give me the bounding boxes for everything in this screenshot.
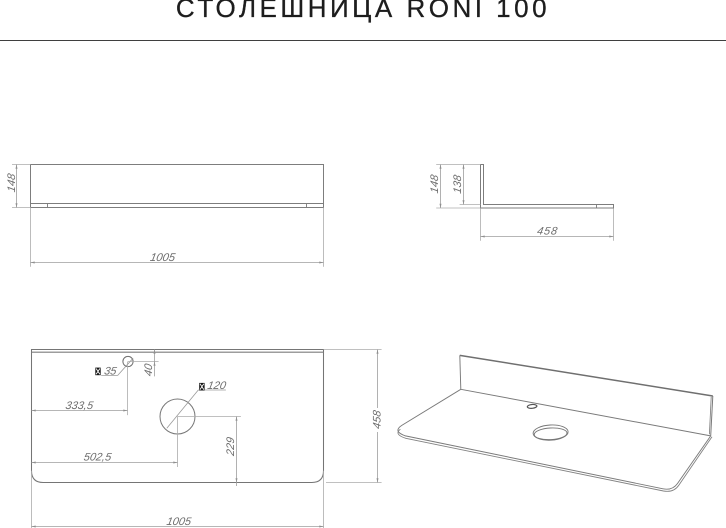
svg-text:40: 40 (143, 362, 155, 377)
svg-text:120: 120 (207, 380, 228, 392)
svg-text:458: 458 (371, 409, 383, 430)
svg-text:1005: 1005 (149, 252, 177, 264)
svg-text:229: 229 (225, 436, 237, 457)
svg-text:148: 148 (6, 172, 18, 193)
svg-text:333,5: 333,5 (65, 400, 95, 412)
svg-text:138: 138 (452, 173, 464, 194)
svg-text:502,5: 502,5 (83, 452, 113, 464)
svg-text:458: 458 (536, 226, 559, 238)
svg-text:1005: 1005 (166, 516, 193, 528)
svg-text:148: 148 (429, 173, 441, 194)
